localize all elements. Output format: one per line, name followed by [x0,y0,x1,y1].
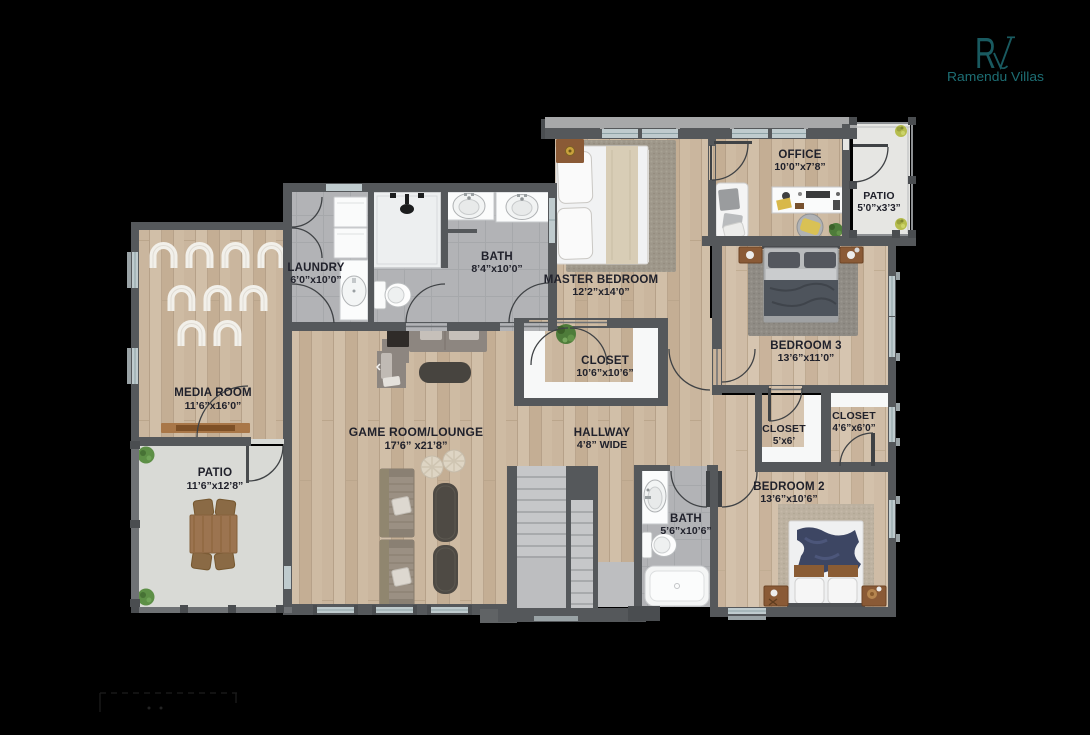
svg-text:5’0”x3’3”: 5’0”x3’3” [857,203,900,214]
svg-text:8’4”x10’0”: 8’4”x10’0” [471,263,522,275]
svg-text:11’6”x12’8”: 11’6”x12’8” [187,480,244,492]
svg-text:CLOSET: CLOSET [581,355,629,367]
svg-text:PATIO: PATIO [863,190,895,202]
svg-text:BEDROOM 2: BEDROOM 2 [753,481,824,493]
svg-text:PATIO: PATIO [198,467,232,479]
svg-text:5’6”x10’6”: 5’6”x10’6” [660,525,711,537]
svg-text:13’6”x10’6”: 13’6”x10’6” [760,493,817,505]
svg-text:Ramendu Villas: Ramendu Villas [947,70,1044,84]
svg-text:BEDROOM 3: BEDROOM 3 [770,340,841,352]
svg-text:4’6”x6’0”: 4’6”x6’0” [832,423,875,434]
svg-text:17’6” x21’8”: 17’6” x21’8” [385,440,448,452]
svg-text:MASTER BEDROOM: MASTER BEDROOM [544,274,659,286]
svg-text:HALLWAY: HALLWAY [574,427,631,439]
svg-text:13’6”x11’0”: 13’6”x11’0” [778,352,835,364]
svg-text:6’0”x10’0”: 6’0”x10’0” [290,274,341,286]
svg-text:11’6”x16’0”: 11’6”x16’0” [185,400,242,412]
svg-text:4’8” WIDE: 4’8” WIDE [577,439,627,451]
svg-text:OFFICE: OFFICE [778,149,821,161]
svg-text:MEDIA ROOM: MEDIA ROOM [174,387,252,399]
svg-text:10’6”x10’6”: 10’6”x10’6” [576,367,633,379]
svg-text:10’0”x7’8”: 10’0”x7’8” [774,161,825,173]
svg-text:CLOSET: CLOSET [762,423,806,435]
svg-text:GAME ROOM/LOUNGE: GAME ROOM/LOUNGE [349,425,484,439]
svg-text:12’2”x14’0”: 12’2”x14’0” [572,286,629,298]
svg-text:LAUNDRY: LAUNDRY [287,262,344,274]
svg-text:BATH: BATH [670,513,702,525]
svg-text:BATH: BATH [481,251,513,263]
svg-text:5’x6’: 5’x6’ [773,436,795,447]
svg-text:CLOSET: CLOSET [832,410,876,422]
